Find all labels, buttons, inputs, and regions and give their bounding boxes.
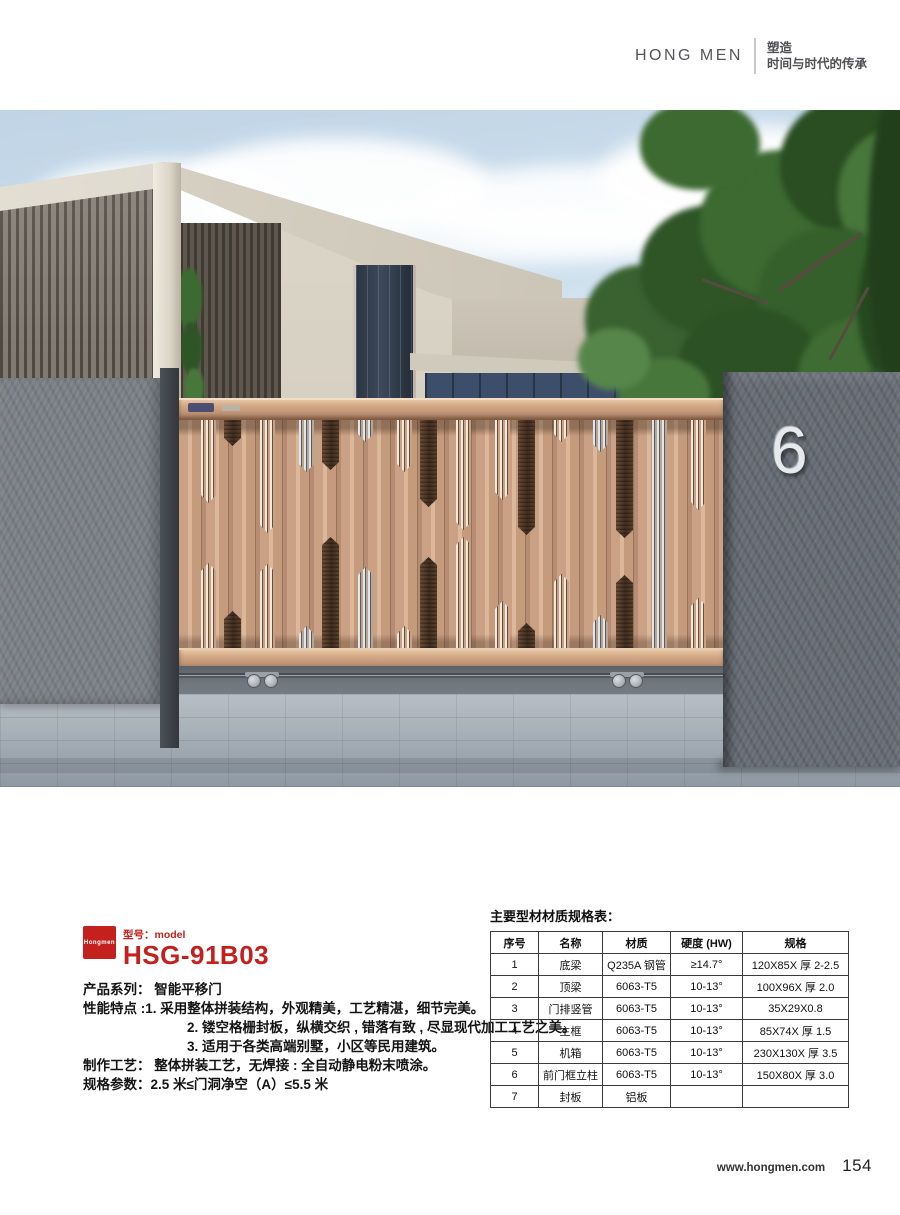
gate-name-plate xyxy=(222,405,240,411)
spec-cell: 6 xyxy=(491,1064,539,1086)
spec-cell: 6063-T5 xyxy=(603,998,671,1020)
spec-cell: 顶梁 xyxy=(539,976,603,998)
spec-cell: 85X74X 厚 1.5 xyxy=(743,1020,849,1042)
right-stone-pillar: 6 xyxy=(723,372,900,767)
brand-wordmark: HONG MEN xyxy=(635,47,743,65)
spec-cell: Q235A 钢管 xyxy=(603,954,671,976)
gate-slat-bars xyxy=(652,420,667,648)
gate-slat-wood xyxy=(224,420,241,446)
house-window xyxy=(353,265,416,402)
spec-cell: 门排竖管 xyxy=(539,998,603,1020)
left-stone-wall xyxy=(0,378,163,704)
gate-top-rail xyxy=(179,398,724,420)
spec-row: 6前门框立柱6063-T510-13°150X80X 厚 3.0 xyxy=(491,1064,849,1086)
product-description: 产品系列： 智能平移门性能特点 :1. 采用整体拼装结构，外观精美，工艺精湛，细… xyxy=(83,980,483,1094)
spec-cell: ≥14.7° xyxy=(671,954,743,976)
brand-logo-box: Hongmen xyxy=(83,926,116,959)
gate-slat-bars xyxy=(299,626,314,648)
spec-cell: 封板 xyxy=(539,1086,603,1108)
spec-row: 1底梁Q235A 钢管≥14.7°120X85X 厚 2-2.5 xyxy=(491,954,849,976)
spec-cell: 35X29X0.8 xyxy=(743,998,849,1020)
gate-slat-bars xyxy=(397,420,412,472)
page-footer: www.hongmen.com 154 xyxy=(717,1156,872,1176)
spec-cell: 机箱 xyxy=(539,1042,603,1064)
brand-tagline: 塑造 时间与时代的传承 xyxy=(767,40,867,73)
website-url: www.hongmen.com xyxy=(717,1162,825,1174)
header-divider xyxy=(754,38,756,74)
spec-cell: 10-13° xyxy=(671,1064,743,1086)
gate-slat-wood xyxy=(616,420,633,538)
house-number: 6 xyxy=(771,412,808,488)
gate-slat-bars xyxy=(397,626,412,648)
spec-cell: 6063-T5 xyxy=(603,1042,671,1064)
spec-cell: 10-13° xyxy=(671,1042,743,1064)
spec-table-section: 主要型材材质规格表： 序号名称材质硬度 (HW)规格 1底梁Q235A 钢管≥1… xyxy=(490,906,855,1108)
gate-wheels-right xyxy=(610,670,644,688)
gate-wheels-left xyxy=(245,670,279,688)
spec-col-header: 名称 xyxy=(539,932,603,954)
wheel xyxy=(247,674,261,688)
spec-col-header: 材质 xyxy=(603,932,671,954)
spec-line: 制作工艺： 整体拼装工艺，无焊接 : 全自动静电粉末喷涂。 xyxy=(83,1056,483,1075)
spec-table-header-row: 序号名称材质硬度 (HW)规格 xyxy=(491,932,849,954)
spec-row: 4主框6063-T510-13°85X74X 厚 1.5 xyxy=(491,1020,849,1042)
spec-line: 规格参数：2.5 米≤门洞净空（A）≤5.5 米 xyxy=(83,1075,483,1094)
gate-slat-bars xyxy=(456,537,471,648)
house-corner-column xyxy=(153,163,181,402)
wheel xyxy=(629,674,643,688)
spec-cell: 100X96X 厚 2.0 xyxy=(743,976,849,998)
plant-vine xyxy=(180,322,202,374)
spec-cell: 2 xyxy=(491,976,539,998)
gate-slat-bars xyxy=(201,563,216,648)
spec-row: 7封板铝板 xyxy=(491,1086,849,1108)
wheel xyxy=(264,674,278,688)
spec-table: 序号名称材质硬度 (HW)规格 1底梁Q235A 钢管≥14.7°120X85X… xyxy=(490,931,849,1108)
spec-cell: 4 xyxy=(491,1020,539,1042)
gate-slat-bars xyxy=(299,420,314,472)
spec-line: 2. 镂空格栅封板，纵横交织 , 错落有致 , 尽显现代加工工艺之美。 xyxy=(83,1018,483,1037)
gate-post xyxy=(160,368,179,748)
spec-cell: 10-13° xyxy=(671,976,743,998)
spec-cell: 3 xyxy=(491,998,539,1020)
gate-slat-bars xyxy=(358,420,373,442)
model-header: Hongmen 型号：model HSG-91B03 xyxy=(83,926,483,969)
product-photo: 6 xyxy=(0,110,900,787)
gate-slat-wood xyxy=(322,537,339,648)
gate-slat-bars xyxy=(495,601,510,648)
gate-slat-wood xyxy=(224,611,241,648)
product-info: Hongmen 型号：model HSG-91B03 产品系列： 智能平移门性能… xyxy=(83,926,483,1094)
gate-slat-bars xyxy=(691,420,706,510)
gate-slat-wood xyxy=(322,420,339,470)
gate-slat-panel xyxy=(179,420,724,648)
tagline-line-1: 塑造 xyxy=(767,40,867,56)
spec-cell: 150X80X 厚 3.0 xyxy=(743,1064,849,1086)
gate-slat-bars xyxy=(260,420,275,533)
spec-line: 3. 适用于各类高端别墅，小区等民用建筑。 xyxy=(83,1037,483,1056)
gate-slat-bars xyxy=(260,564,275,648)
gate-slat-bars xyxy=(456,420,471,530)
spec-cell: 1 xyxy=(491,954,539,976)
spec-cell: 6063-T5 xyxy=(603,976,671,998)
spec-cell xyxy=(743,1086,849,1108)
model-text-column: 型号：model HSG-91B03 xyxy=(123,926,269,969)
gate-slat-bars xyxy=(554,574,569,648)
gate-slat-bars xyxy=(358,567,373,648)
wheel xyxy=(612,674,626,688)
gate-slat-wood xyxy=(518,623,535,648)
spec-row: 5机箱6063-T510-13°230X130X 厚 3.5 xyxy=(491,1042,849,1064)
gate-slat-bars xyxy=(593,420,608,452)
gate-slat-wood xyxy=(616,575,633,648)
spec-cell xyxy=(671,1086,743,1108)
spec-line: 性能特点 :1. 采用整体拼装结构，外观精美，工艺精湛，细节完美。 xyxy=(83,999,483,1018)
spec-cell: 120X85X 厚 2-2.5 xyxy=(743,954,849,976)
page-number: 154 xyxy=(842,1156,872,1176)
catalog-page: HONG MEN 塑造 时间与时代的传承 xyxy=(0,0,900,1215)
gate-slat-bars xyxy=(554,420,569,442)
gate-slat-bars xyxy=(495,420,510,500)
page-header: HONG MEN 塑造 时间与时代的传承 xyxy=(635,38,867,74)
foliage-cluster xyxy=(578,328,650,390)
spec-table-body: 1底梁Q235A 钢管≥14.7°120X85X 厚 2-2.52顶梁6063-… xyxy=(491,954,849,1108)
gate-slat-bars xyxy=(593,615,608,648)
spec-cell: 5 xyxy=(491,1042,539,1064)
spec-cell: 10-13° xyxy=(671,1020,743,1042)
tagline-line-2: 时间与时代的传承 xyxy=(767,56,867,72)
spec-cell: 底梁 xyxy=(539,954,603,976)
spec-cell: 6063-T5 xyxy=(603,1020,671,1042)
spec-cell: 铝板 xyxy=(603,1086,671,1108)
spec-table-title: 主要型材材质规格表： xyxy=(490,906,855,925)
gate-slat-wood xyxy=(420,557,437,648)
spec-col-header: 序号 xyxy=(491,932,539,954)
spec-cell: 10-13° xyxy=(671,998,743,1020)
spec-row: 3门排竖管6063-T510-13°35X29X0.8 xyxy=(491,998,849,1020)
model-number: HSG-91B03 xyxy=(123,942,269,969)
gate-slat-wood xyxy=(420,420,437,507)
gate-brand-plate xyxy=(188,403,214,412)
spec-cell: 230X130X 厚 3.5 xyxy=(743,1042,849,1064)
spec-col-header: 规格 xyxy=(743,932,849,954)
gate-slat-bars xyxy=(691,598,706,648)
foliage-cluster xyxy=(640,110,760,190)
gate-slat-wood xyxy=(518,420,535,535)
spec-cell: 前门框立柱 xyxy=(539,1064,603,1086)
spec-cell: 6063-T5 xyxy=(603,1064,671,1086)
spec-cell: 7 xyxy=(491,1086,539,1108)
spec-row: 2顶梁6063-T510-13°100X96X 厚 2.0 xyxy=(491,976,849,998)
gate-slat-bars xyxy=(201,420,216,503)
spec-col-header: 硬度 (HW) xyxy=(671,932,743,954)
spec-cell: 主框 xyxy=(539,1020,603,1042)
spec-line: 产品系列： 智能平移门 xyxy=(83,980,483,999)
